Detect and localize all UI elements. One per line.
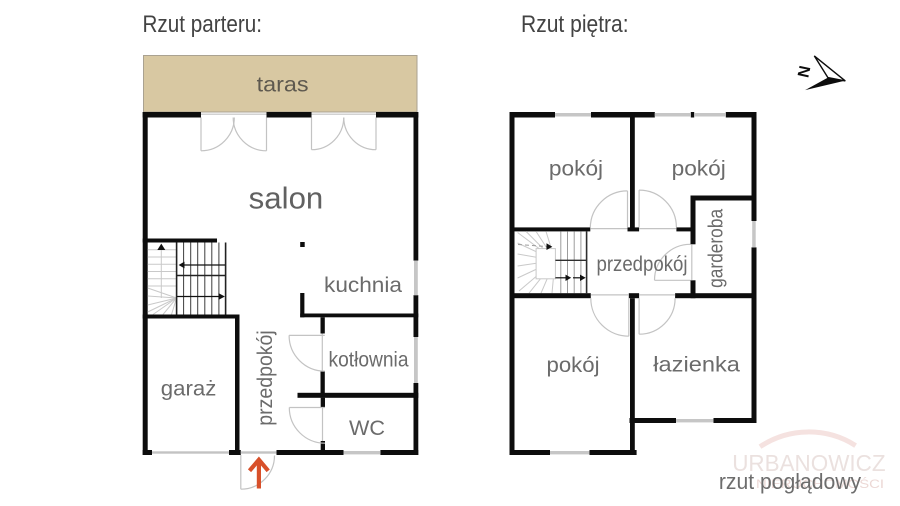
svg-text:pokój: pokój [549,157,603,180]
svg-text:kotłownia: kotłownia [329,349,409,372]
svg-text:salon: salon [249,181,324,216]
svg-text:rzut pogłądowy: rzut pogłądowy [719,469,861,494]
svg-text:garaż: garaż [161,378,217,401]
svg-text:pokój: pokój [547,354,600,377]
svg-text:Rzut parteru:: Rzut parteru: [143,11,263,38]
svg-text:taras: taras [257,73,309,96]
svg-text:WC: WC [349,417,385,440]
svg-text:kuchnia: kuchnia [324,274,402,297]
svg-text:przedpokój: przedpokój [597,253,688,276]
svg-text:łazienka: łazienka [653,354,740,377]
svg-text:Rzut piętra:: Rzut piętra: [521,11,629,38]
svg-text:garderoba: garderoba [706,208,728,288]
svg-text:przedpokój: przedpokój [254,330,277,426]
svg-text:pokój: pokój [672,158,726,181]
